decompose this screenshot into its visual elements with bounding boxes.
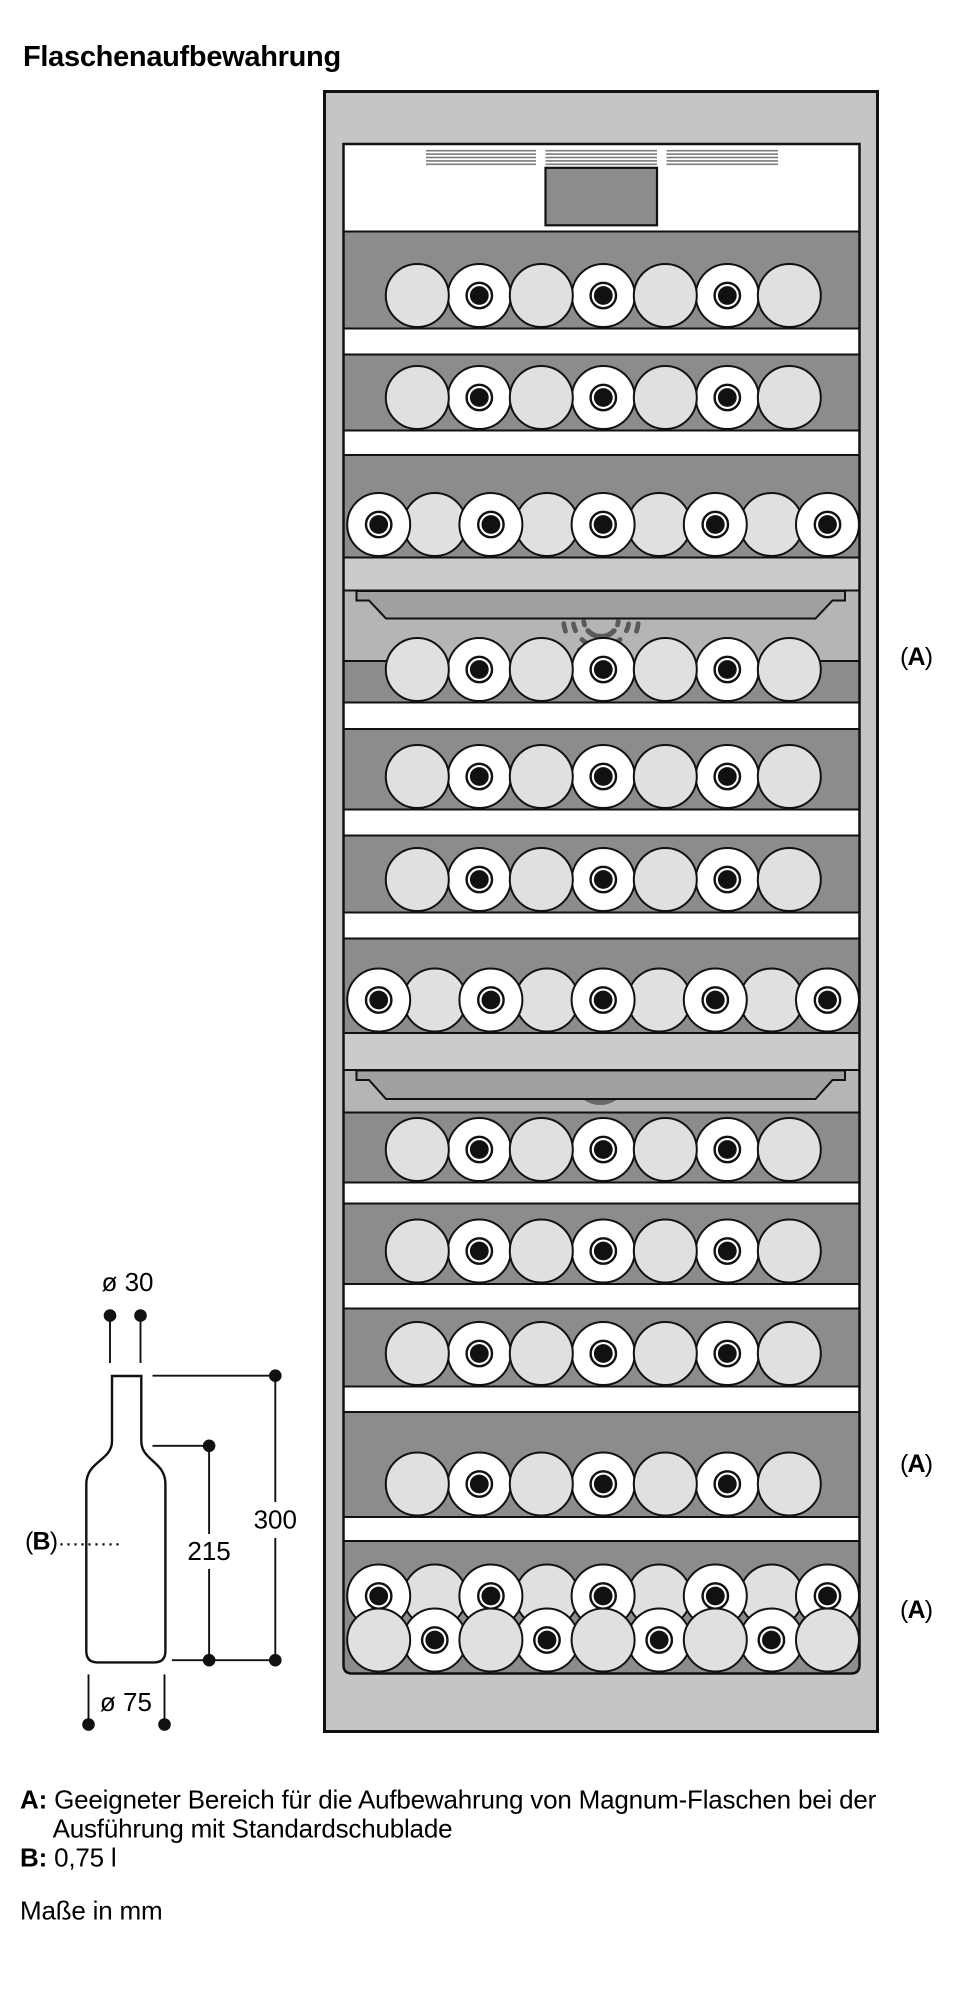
svg-text:ø 75: ø 75 [100,1687,152,1717]
svg-text:A: Geeigneter Bereich für die: A: Geeigneter Bereich für die Aufbewahru… [20,1785,877,1815]
svg-text:300: 300 [254,1505,297,1535]
svg-text:Ausführung mit Standardschubla: Ausführung mit Standardschublade [53,1814,453,1844]
svg-text:ø 30: ø 30 [101,1267,153,1297]
svg-text:(A): (A) [900,1450,932,1478]
svg-text:Maße in mm: Maße in mm [20,1896,162,1926]
svg-text:215: 215 [187,1536,230,1566]
svg-text:(A): (A) [900,1596,932,1624]
svg-text:Flaschenaufbewahrung: Flaschenaufbewahrung [23,41,341,73]
svg-text:B: 0,75 l: B: 0,75 l [20,1843,116,1873]
svg-text:(B): (B) [25,1528,57,1556]
svg-text:(A): (A) [900,643,932,671]
